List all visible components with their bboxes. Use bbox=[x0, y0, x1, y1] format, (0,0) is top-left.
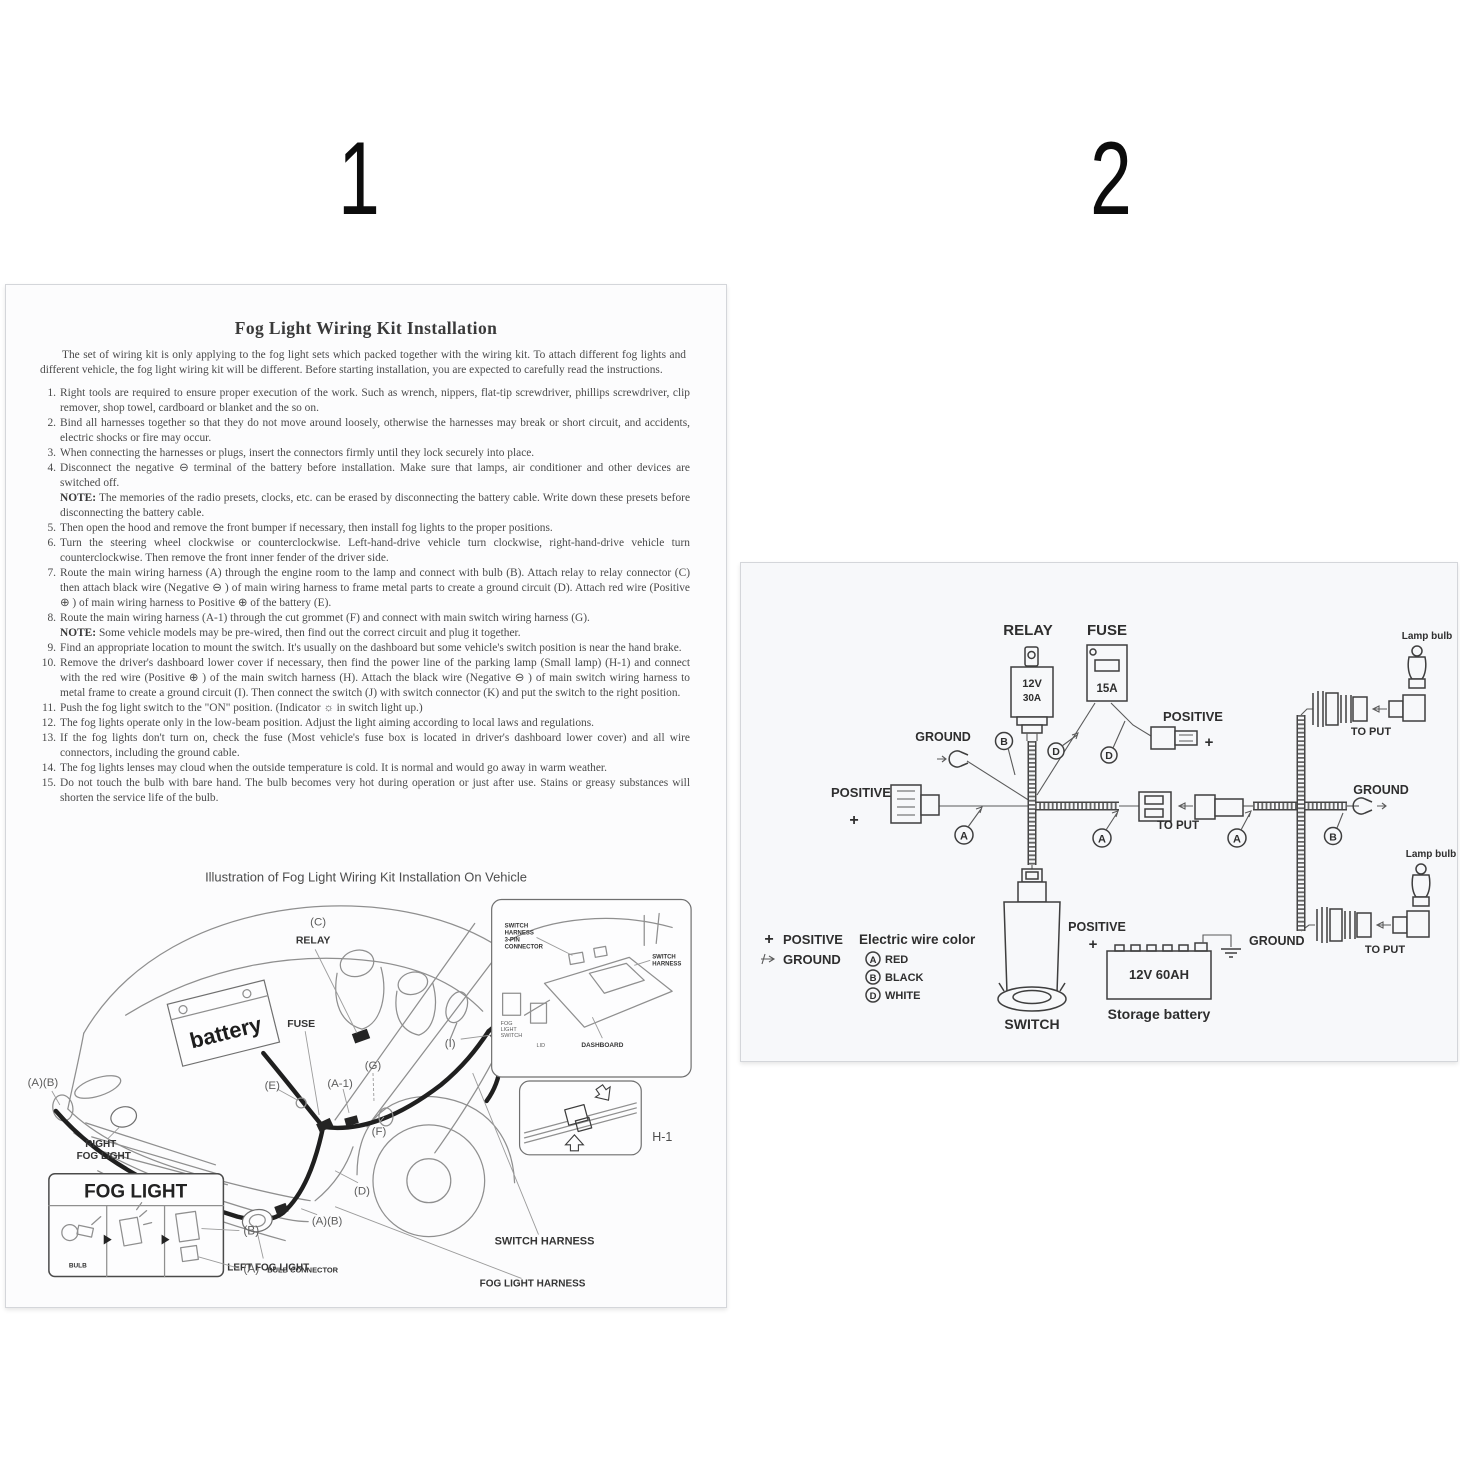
scanned-instruction-sheets: 1 2 Fog Light Wiring Kit Installation Th… bbox=[0, 0, 1460, 1460]
label-right-fog-light-line2: FOG LIGHT bbox=[77, 1151, 131, 1162]
step-number: 10. bbox=[34, 656, 56, 671]
inset-fog-switch-label-3: SWITCH bbox=[501, 1033, 523, 1039]
label-ground: GROUND bbox=[915, 730, 971, 744]
legend-a-icon: A bbox=[870, 955, 877, 966]
intro-paragraph: The set of wiring kit is only applying t… bbox=[40, 348, 686, 378]
list-item: 12.The fog lights operate only in the lo… bbox=[34, 716, 690, 731]
label-to-put-bottom: TO PUT bbox=[1365, 944, 1405, 956]
list-item: 6.Turn the steering wheel clockwise or c… bbox=[34, 536, 690, 566]
legend-plus-icon: + bbox=[764, 931, 773, 948]
label-right-fog-light-line1: RIGHT bbox=[85, 1139, 116, 1150]
step-text: Route the main wiring harness (A) throug… bbox=[60, 567, 690, 609]
step-text: Then open the hood and remove the front … bbox=[60, 522, 553, 534]
relay-amps: 30A bbox=[1023, 693, 1041, 704]
page-1-number: 1 bbox=[338, 120, 380, 239]
label-e: (E) bbox=[265, 1080, 280, 1092]
label-positive: POSITIVE bbox=[831, 785, 891, 800]
illustration-heading: Illustration of Fog Light Wiring Kit Ins… bbox=[205, 870, 527, 885]
step-number: 6. bbox=[34, 536, 56, 551]
callout-a1: A bbox=[960, 831, 968, 843]
page-1-sheet: Fog Light Wiring Kit Installation The se… bbox=[5, 284, 727, 1308]
step-text: The fog lights lenses may cloud when the… bbox=[60, 762, 607, 774]
inset-lid-label: LID bbox=[537, 1043, 546, 1049]
callout-a2: A bbox=[1098, 834, 1106, 846]
relay-blade-icon bbox=[1025, 647, 1038, 666]
step-number: 4. bbox=[34, 461, 56, 476]
callout-b2: B bbox=[1329, 832, 1337, 844]
label-ground-right: GROUND bbox=[1353, 783, 1409, 797]
list-item: 7.Route the main wiring harness (A) thro… bbox=[34, 566, 690, 611]
step-text: Turn the steering wheel clockwise or cou… bbox=[60, 537, 690, 564]
positive-connector-left: POSITIVE + bbox=[831, 785, 939, 829]
plus-icon-top: + bbox=[1205, 734, 1214, 751]
label-f: (F) bbox=[372, 1126, 387, 1138]
list-item: 13.If the fog lights don't turn on, chec… bbox=[34, 731, 690, 761]
label-positive-top: POSITIVE bbox=[1163, 709, 1223, 724]
ground-right: GROUND bbox=[1353, 783, 1409, 814]
bulb-connector-blob bbox=[274, 1203, 288, 1216]
step-number: 15. bbox=[34, 776, 56, 791]
ground-fork-icon bbox=[949, 751, 968, 767]
step-text: Find an appropriate location to mount th… bbox=[60, 642, 682, 654]
note-text: Some vehicle models may be pre-wired, th… bbox=[99, 627, 521, 639]
label-relay: RELAY bbox=[296, 935, 331, 946]
relay-blob bbox=[352, 1029, 370, 1044]
earth-ground-icon bbox=[1221, 949, 1241, 957]
step-text: Push the fog light switch to the "ON" po… bbox=[60, 702, 423, 714]
label-ground-battery: GROUND bbox=[1249, 934, 1305, 948]
label-positive-battery: POSITIVE bbox=[1068, 920, 1126, 934]
step-number: 13. bbox=[34, 731, 56, 746]
label-h1: H-1 bbox=[652, 1130, 672, 1144]
label-c: (C) bbox=[310, 916, 326, 928]
step-text: Do not touch the bulb with bare hand. Th… bbox=[60, 777, 690, 804]
callout-d2: D bbox=[1105, 750, 1113, 762]
step-number: 12. bbox=[34, 716, 56, 731]
list-item: 11.Push the fog light switch to the "ON"… bbox=[34, 701, 690, 716]
battery-rating: 12V 60AH bbox=[1129, 967, 1189, 982]
list-item: 15.Do not touch the bulb with bare hand.… bbox=[34, 776, 690, 806]
plus-icon-battery: + bbox=[1089, 936, 1098, 953]
legend-positive: POSITIVE bbox=[783, 932, 843, 947]
step-note: NOTE: The memories of the radio presets,… bbox=[60, 491, 690, 521]
relay-label: RELAY bbox=[1003, 622, 1052, 639]
legend-b-icon: B bbox=[870, 973, 877, 984]
label-to-put-top: TO PUT bbox=[1351, 726, 1391, 738]
fuse-component: FUSE 15A bbox=[1087, 622, 1127, 701]
callout-a3: A bbox=[1233, 834, 1241, 846]
label-i: (I) bbox=[445, 1038, 456, 1050]
step-note: NOTE: Some vehicle models may be pre-wir… bbox=[60, 626, 690, 641]
relay-voltage: 12V bbox=[1022, 678, 1042, 690]
label-switch-harness: SWITCH HARNESS bbox=[495, 1236, 595, 1248]
note-label: NOTE: bbox=[60, 627, 96, 639]
lamp-assembly-bottom: Lamp bulb TO PUT bbox=[1317, 849, 1456, 956]
page-2-number: 2 bbox=[1090, 120, 1132, 239]
legend-d-color: WHITE bbox=[885, 990, 920, 1002]
legend-title: Electric wire color bbox=[859, 932, 976, 947]
step-number: 11. bbox=[34, 701, 56, 716]
list-item: 5.Then open the hood and remove the fron… bbox=[34, 521, 690, 536]
step-number: 1. bbox=[34, 386, 56, 401]
vehicle-illustration: Illustration of Fog Light Wiring Kit Ins… bbox=[6, 865, 726, 1307]
list-item: 8.Route the main wiring harness (A-1) th… bbox=[34, 611, 690, 641]
ground-arrow-icon-right bbox=[1377, 803, 1386, 809]
step-text: Route the main wiring harness (A-1) thro… bbox=[60, 612, 590, 624]
step-number: 3. bbox=[34, 446, 56, 461]
switch-label: SWITCH bbox=[1004, 1016, 1059, 1032]
label-b-bulb: (B) bbox=[243, 1224, 259, 1238]
h1-tap-inset bbox=[520, 1081, 642, 1155]
legend: + POSITIVE GROUND Electric wire color A … bbox=[761, 931, 976, 1002]
label-to-put-mid: TO PUT bbox=[1157, 820, 1199, 832]
step-number: 7. bbox=[34, 566, 56, 581]
wiring-diagram: RELAY 12V 30A FUSE 15A bbox=[741, 563, 1457, 1061]
fuse-label: FUSE bbox=[1087, 622, 1127, 639]
instruction-list: 1.Right tools are required to ensure pro… bbox=[34, 386, 690, 806]
list-item: 1.Right tools are required to ensure pro… bbox=[34, 386, 690, 416]
list-item: 14.The fog lights lenses may cloud when … bbox=[34, 761, 690, 776]
step-text: Right tools are required to ensure prope… bbox=[60, 387, 690, 414]
inset-connector-label-2: HARNESS bbox=[505, 930, 534, 936]
lamp-assembly-top: Lamp bulb TO PUT bbox=[1313, 631, 1452, 738]
step-text: Disconnect the negative ⊖ terminal of th… bbox=[60, 462, 690, 489]
legend-ground: GROUND bbox=[783, 952, 841, 967]
label-fuse: FUSE bbox=[287, 1019, 315, 1030]
ground-arrow-icon bbox=[937, 756, 946, 762]
list-item: 10.Remove the driver's dashboard lower c… bbox=[34, 656, 690, 701]
label-ab-left: (A)(B) bbox=[28, 1077, 59, 1089]
inset-connector-label-4: CONNECTOR bbox=[505, 944, 544, 950]
step-number: 9. bbox=[34, 641, 56, 656]
step-number: 14. bbox=[34, 761, 56, 776]
label-lamp-bulb-bottom: Lamp bulb bbox=[1406, 849, 1457, 860]
legend-d-icon: D bbox=[870, 991, 877, 1002]
dashboard-inset: SWITCH HARNESS 3-PIN CONNECTOR SWITCH HA… bbox=[492, 900, 691, 1078]
switch-component: SWITCH bbox=[998, 869, 1066, 1032]
inset-connector-label-3: 3-PIN bbox=[505, 937, 520, 943]
label-a-bulb: (A) bbox=[243, 1261, 259, 1275]
relay-component: RELAY 12V 30A bbox=[1003, 622, 1053, 741]
label-fog-light-harness: FOG LIGHT HARNESS bbox=[480, 1278, 586, 1289]
inset-connector-label-1: SWITCH bbox=[505, 923, 529, 929]
step-number: 2. bbox=[34, 416, 56, 431]
page-title: Fog Light Wiring Kit Installation bbox=[6, 318, 726, 339]
list-item: 4.Disconnect the negative ⊖ terminal of … bbox=[34, 461, 690, 521]
ground-relay: GROUND bbox=[915, 730, 971, 767]
inset-switch-harness-label-2: HARNESS bbox=[652, 961, 681, 967]
inset-switch-harness-label-1: SWITCH bbox=[652, 954, 676, 960]
label-bulb-connector: BULB CONNECTOR bbox=[267, 1265, 338, 1274]
label-lamp-bulb-top: Lamp bulb bbox=[1402, 631, 1453, 642]
step-text: If the fog lights don't turn on, check t… bbox=[60, 732, 690, 759]
step-number: 5. bbox=[34, 521, 56, 536]
fuse-amps: 15A bbox=[1096, 683, 1117, 695]
callout-b: B bbox=[1000, 736, 1008, 748]
plus-icon: + bbox=[849, 812, 858, 829]
list-item: 2.Bind all harnesses together so that th… bbox=[34, 416, 690, 446]
legend-a-color: RED bbox=[885, 954, 908, 966]
step-text: Remove the driver's dashboard lower cove… bbox=[60, 657, 690, 699]
inset-dashboard-label: DASHBOARD bbox=[581, 1042, 623, 1049]
step-text: When connecting the harnesses or plugs, … bbox=[60, 447, 534, 459]
label-a1: (A-1) bbox=[327, 1078, 353, 1090]
inline-connector-pair: TO PUT bbox=[1139, 792, 1243, 832]
note-text: The memories of the radio presets, clock… bbox=[60, 492, 690, 519]
wire-letter-callouts: B D D A A A B bbox=[955, 721, 1343, 847]
list-item: 3.When connecting the harnesses or plugs… bbox=[34, 446, 690, 461]
battery-caption: Storage battery bbox=[1108, 1006, 1211, 1022]
legend-b-color: BLACK bbox=[885, 972, 924, 984]
label-d: (D) bbox=[354, 1186, 370, 1198]
positive-connector-top: POSITIVE + bbox=[1151, 709, 1223, 751]
label-ab-bottom: (A)(B) bbox=[312, 1216, 343, 1228]
list-item: 9.Find an appropriate location to mount … bbox=[34, 641, 690, 656]
bulb-label: BULB bbox=[69, 1262, 87, 1269]
fog-light-bulb-box: FOG LIGHT BULB (B) bbox=[49, 1174, 339, 1277]
step-number: 8. bbox=[34, 611, 56, 626]
callout-d: D bbox=[1052, 746, 1060, 758]
note-label: NOTE: bbox=[60, 492, 96, 504]
page-2-sheet: RELAY 12V 30A FUSE 15A bbox=[740, 562, 1458, 1062]
storage-battery: POSITIVE + GROUND 12V 60AH Storage batte… bbox=[1068, 920, 1304, 1022]
legend-ground-icon bbox=[761, 954, 774, 964]
step-text: The fog lights operate only in the low-b… bbox=[60, 717, 594, 729]
label-g: (G) bbox=[365, 1060, 382, 1072]
step-text: Bind all harnesses together so that they… bbox=[60, 417, 690, 444]
fog-light-box-title: FOG LIGHT bbox=[84, 1182, 188, 1203]
